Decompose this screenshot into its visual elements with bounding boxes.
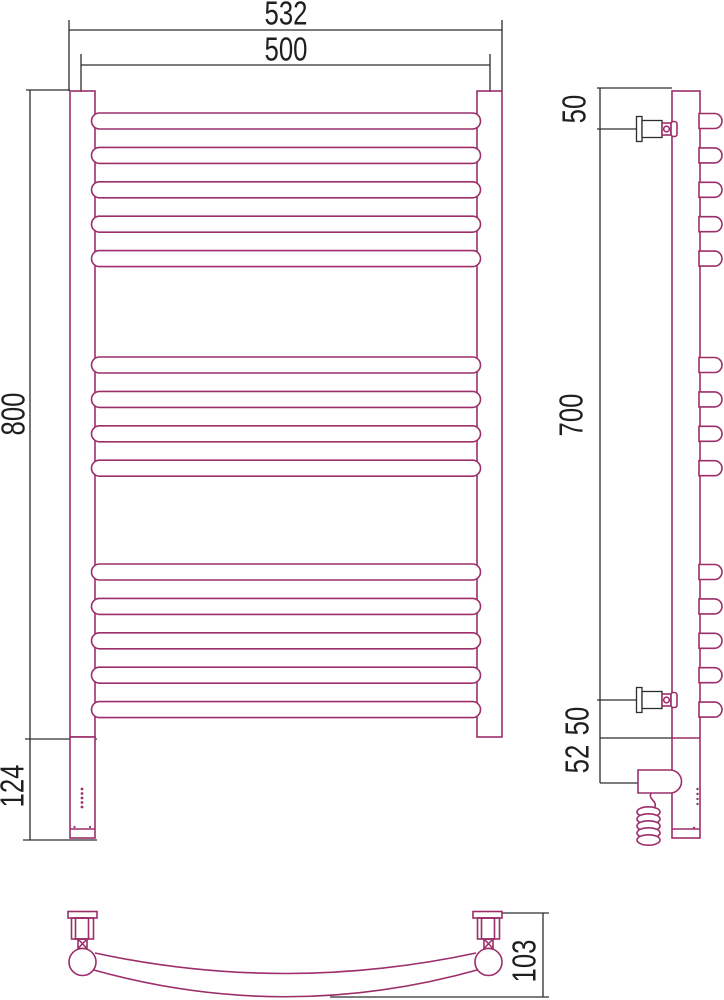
towel-bar xyxy=(92,667,481,683)
bar-stub xyxy=(699,392,722,407)
bar-stub xyxy=(699,633,722,648)
bracket-flange xyxy=(637,688,643,713)
bar-stub xyxy=(699,148,722,163)
bar-stub xyxy=(699,599,722,614)
towel-rail-technical-drawing: 532 500 800 124 50 700 50 52 103 xyxy=(0,0,724,1000)
bar-stub xyxy=(699,217,722,232)
power-cable xyxy=(650,793,655,807)
heating-element-plug xyxy=(638,770,682,793)
dim-label-52: 52 xyxy=(561,745,594,774)
towel-bar xyxy=(92,564,481,580)
wall-plate xyxy=(473,912,502,919)
bracket-body xyxy=(642,121,662,138)
front-view xyxy=(70,91,502,838)
towel-bar xyxy=(92,216,481,232)
wall-plate xyxy=(68,912,97,919)
side-leds xyxy=(693,788,699,829)
bracket-body xyxy=(642,692,662,709)
dimension-lines-side xyxy=(597,88,672,783)
bar-stub xyxy=(699,565,722,580)
wall-bracket-bottom xyxy=(637,688,678,713)
towel-bar xyxy=(92,113,481,129)
bar-stub xyxy=(699,114,722,129)
towel-bar xyxy=(92,147,481,163)
dim-label-532: 532 xyxy=(265,0,308,30)
bracket-tube xyxy=(482,918,495,939)
towel-bars xyxy=(92,113,481,718)
towel-bar xyxy=(92,598,481,614)
towel-bar xyxy=(92,391,481,407)
dim-label-50-top: 50 xyxy=(558,95,591,124)
bracket-cap xyxy=(671,122,677,137)
dim-label-800: 800 xyxy=(0,393,30,436)
bar-stub xyxy=(699,668,722,683)
drawing-canvas xyxy=(0,0,724,1000)
towel-bar xyxy=(92,182,481,198)
towel-bar xyxy=(92,633,481,649)
bar-stub xyxy=(699,182,722,197)
wall-bracket-top xyxy=(637,117,678,142)
rail-section xyxy=(475,949,502,976)
bracket-cap xyxy=(671,693,677,708)
heater-box xyxy=(70,737,95,838)
bottom-bracket-left xyxy=(68,912,97,976)
bracket-flange xyxy=(637,117,643,142)
towel-bar xyxy=(92,251,481,267)
dim-label-50-bottom: 50 xyxy=(561,707,594,736)
side-view xyxy=(637,91,723,845)
towel-bar xyxy=(92,426,481,442)
bar-stub xyxy=(699,358,722,373)
dim-label-124: 124 xyxy=(0,765,29,808)
bar-stub xyxy=(699,461,722,476)
curved-bar-front-edge xyxy=(95,953,476,974)
bar-stub xyxy=(699,426,722,441)
towel-bar xyxy=(92,357,481,373)
power-cable-coil xyxy=(637,807,660,845)
bracket-tube xyxy=(76,918,89,939)
bottom-view xyxy=(68,912,502,997)
side-rail xyxy=(672,91,700,838)
dim-label-700: 700 xyxy=(555,394,588,437)
dim-label-500: 500 xyxy=(265,33,308,66)
towel-bar xyxy=(92,702,481,718)
towel-bar xyxy=(92,460,481,476)
bar-stub xyxy=(699,702,722,717)
rail-section xyxy=(69,949,96,976)
bar-stub xyxy=(699,251,722,266)
bar-stubs xyxy=(699,114,722,718)
dim-label-103: 103 xyxy=(508,940,541,983)
bottom-bracket-right xyxy=(473,912,502,976)
